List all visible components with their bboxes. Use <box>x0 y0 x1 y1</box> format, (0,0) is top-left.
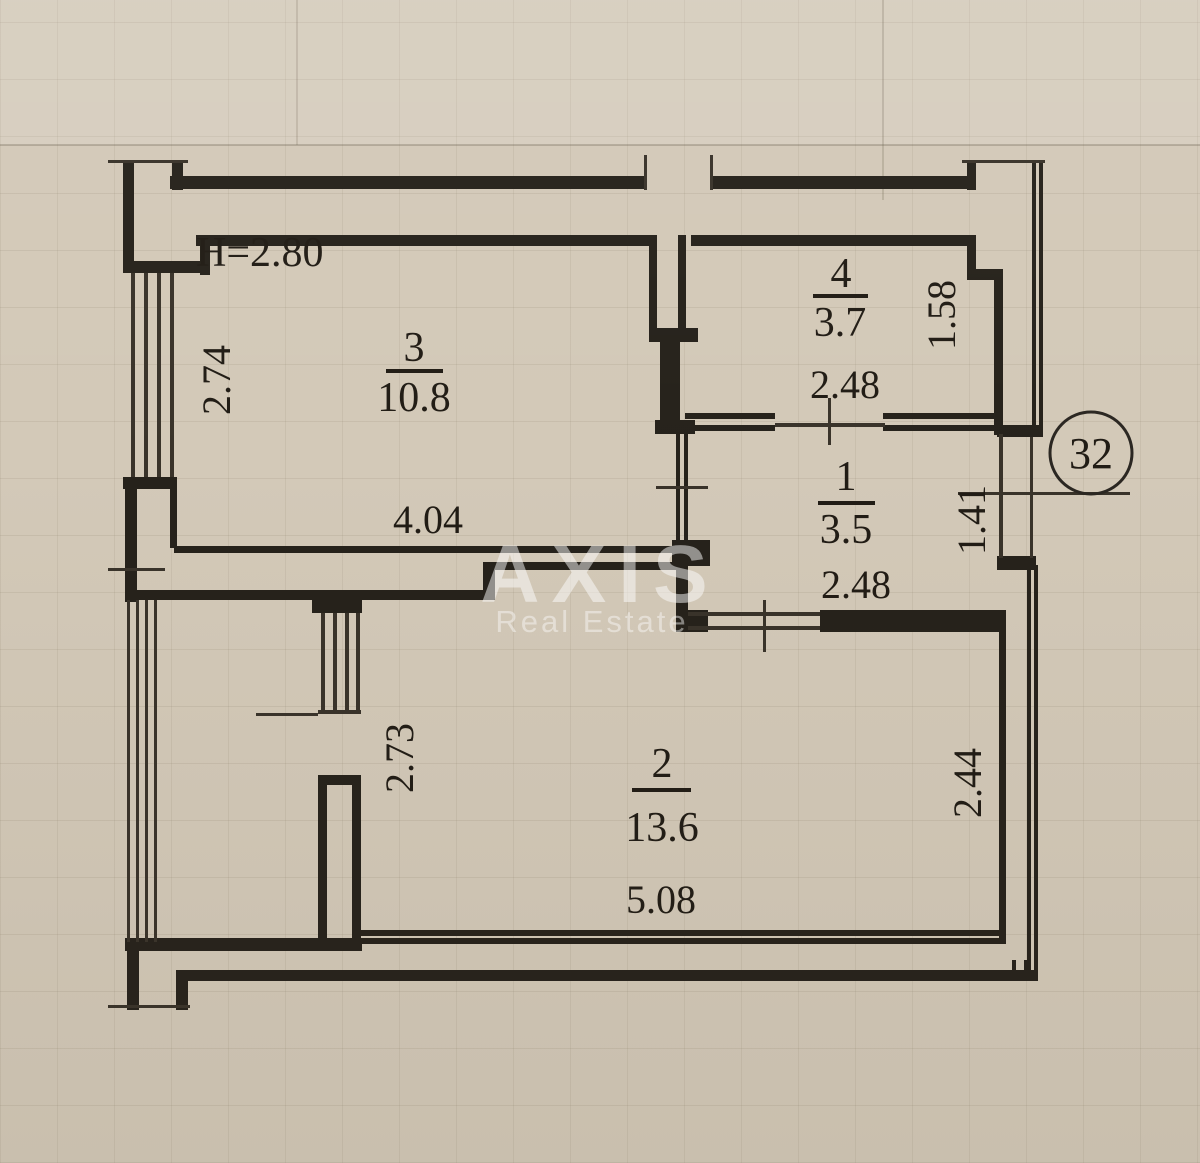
room-1-area: 3.5 <box>820 507 873 553</box>
entrance-door-jamb <box>999 434 1003 558</box>
balcony-depth-dim: 2.73 <box>377 723 422 793</box>
wall <box>1039 160 1043 437</box>
wall <box>123 160 134 273</box>
window-balcony-room2 <box>356 613 360 712</box>
wall <box>356 930 1006 936</box>
wall <box>999 630 1006 943</box>
wall <box>883 425 1003 431</box>
tick <box>763 600 766 652</box>
tick <box>108 160 188 163</box>
room-4-number: 4 <box>831 251 852 297</box>
wall <box>883 413 1003 419</box>
wall <box>356 938 1006 944</box>
window-balcony-room2 <box>318 710 361 714</box>
room-4-area: 3.7 <box>814 300 867 346</box>
wall <box>312 600 362 613</box>
room-3-height-dim: 2.74 <box>194 345 239 415</box>
window-balcony-outer <box>145 600 148 942</box>
wall <box>660 338 680 434</box>
wall <box>685 413 775 419</box>
wall <box>1027 565 1031 981</box>
tick <box>256 713 318 716</box>
room-1-height-dim: 1.41 <box>949 485 994 555</box>
tick <box>710 155 713 190</box>
wall <box>318 777 327 945</box>
window-balcony-room2 <box>345 613 349 712</box>
room-2-underline <box>632 788 691 792</box>
wall <box>170 477 177 548</box>
window-room3 <box>170 273 174 477</box>
watermark: AXIS Real Estate <box>480 529 719 639</box>
wall <box>678 235 686 335</box>
door-threshold-hall <box>688 626 822 630</box>
tick <box>108 568 165 571</box>
wall <box>685 425 775 431</box>
window-room3 <box>131 273 135 477</box>
entrance-door-jamb <box>1030 437 1033 558</box>
window-balcony-room2 <box>333 613 337 712</box>
room-1-number: 1 <box>836 454 857 500</box>
tick <box>644 155 647 190</box>
room-2-width-dim: 5.08 <box>626 877 696 922</box>
room-2-height-dim: 2.44 <box>945 748 990 818</box>
ceiling-height-note: H=2.80 <box>196 230 324 276</box>
room-4-underline <box>813 294 868 298</box>
room-3-width-dim: 4.04 <box>393 497 463 542</box>
wall <box>1034 565 1038 981</box>
wall <box>125 477 137 602</box>
room-4-height-dim: 1.58 <box>919 280 964 350</box>
room-3-underline <box>386 369 443 373</box>
wall <box>1032 160 1036 437</box>
wall <box>711 176 976 189</box>
tick <box>656 486 708 489</box>
floor-plan-photo: H=2.80 3 10.8 4.04 2.74 4 3.7 2.48 1.58 … <box>0 0 1200 1163</box>
wall <box>125 590 493 600</box>
tick <box>108 1005 190 1008</box>
room-2-number: 2 <box>652 741 673 787</box>
room-4-width-dim: 2.48 <box>810 362 880 407</box>
room-1-width-dim: 2.48 <box>821 562 891 607</box>
window-room3 <box>144 273 148 477</box>
wall <box>1012 960 1016 972</box>
wall <box>649 235 657 335</box>
wall <box>967 160 976 190</box>
room-3-number: 3 <box>404 325 425 371</box>
window-balcony-outer <box>136 600 139 942</box>
floor-plan-drawing: H=2.80 3 10.8 4.04 2.74 4 3.7 2.48 1.58 … <box>0 0 1200 1163</box>
watermark-tagline: Real Estate <box>495 604 688 639</box>
wall <box>127 948 139 1010</box>
room-2-area: 13.6 <box>625 805 699 851</box>
tick <box>962 160 1045 163</box>
wall <box>176 970 1038 981</box>
wall <box>170 176 646 189</box>
apartment-number: 32 <box>1069 429 1113 478</box>
window-balcony-outer <box>154 600 157 942</box>
wall <box>994 269 1003 435</box>
window-balcony-outer <box>127 600 130 942</box>
room-1-underline <box>818 501 875 505</box>
wall <box>997 425 1043 437</box>
wall <box>820 610 1006 632</box>
window-room3 <box>157 273 161 477</box>
wall <box>691 235 975 246</box>
room-3-area: 10.8 <box>377 375 451 421</box>
window-balcony-room2 <box>321 613 325 712</box>
wall <box>352 777 361 945</box>
wall <box>125 938 362 951</box>
